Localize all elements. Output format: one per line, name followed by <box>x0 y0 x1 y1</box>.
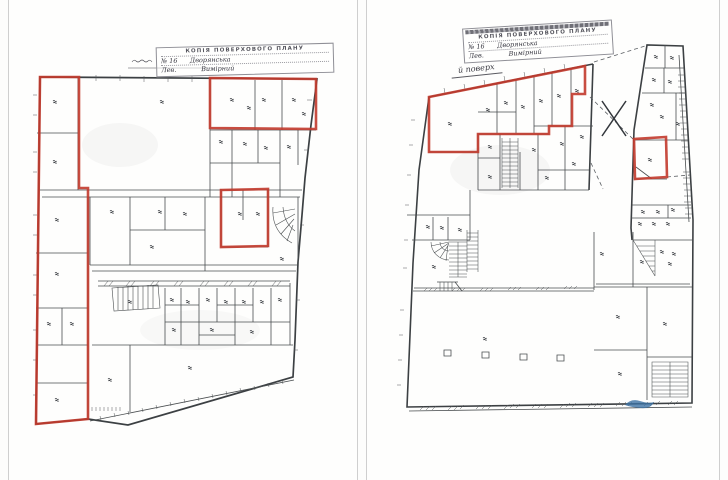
window-ticks <box>33 75 312 420</box>
left-floor-plan <box>33 60 317 425</box>
stamp-left: КОПІЯ ПОВЕРХОВОГО ПЛАНУ № 16 Дворянська … <box>156 43 335 78</box>
scanned-floor-plans: КОПІЯ ПОВЕРХОВОГО ПЛАНУ № 16 Дворянська … <box>0 0 728 480</box>
interior-walls <box>407 45 692 411</box>
dashed-lines <box>590 46 690 189</box>
outer-walls <box>407 45 693 407</box>
red-highlights <box>36 77 316 424</box>
blue-marker <box>625 400 654 408</box>
right-floor-plan <box>397 45 693 411</box>
x-mark <box>602 101 626 136</box>
plans-drawing <box>0 0 728 480</box>
